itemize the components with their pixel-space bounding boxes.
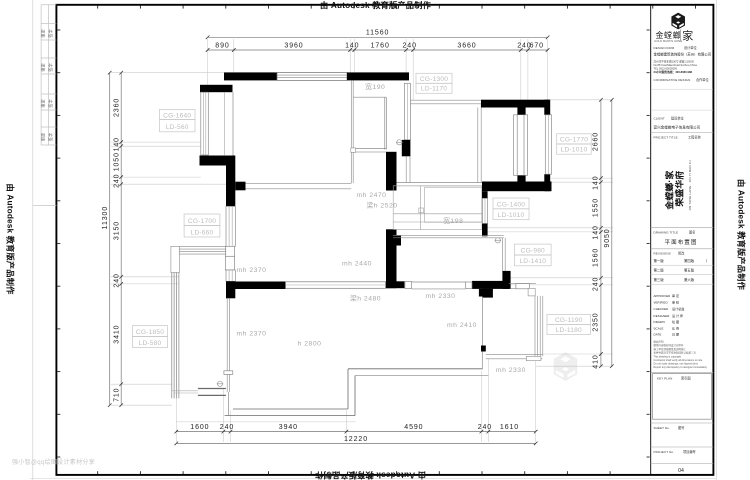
svg-text:This drawing is copyright: This drawing is copyright <box>654 355 682 358</box>
svg-text:APPROVED: APPROVED <box>654 294 671 298</box>
svg-text:mh 2370: mh 2370 <box>237 331 267 338</box>
svg-text:建设单位: 建设单位 <box>671 116 685 121</box>
svg-text:1550: 1550 <box>592 198 599 217</box>
svg-text:240: 240 <box>403 42 417 49</box>
svg-text:240: 240 <box>478 424 492 431</box>
svg-text:第二版: 第二版 <box>654 267 665 272</box>
svg-text:审定: 审定 <box>40 29 47 37</box>
svg-text:SHEET No.: SHEET No. <box>654 426 670 430</box>
svg-text:1760: 1760 <box>371 42 390 49</box>
svg-text:签字: 签字 <box>47 29 53 37</box>
svg-text:3410: 3410 <box>114 325 121 344</box>
svg-text:Contractor shall verify all di: Contractor shall verify all dimensions o… <box>654 359 703 362</box>
svg-text:DESIGN FIRM: DESIGN FIRM <box>654 46 675 50</box>
svg-text:LD-1180: LD-1180 <box>556 327 582 334</box>
svg-text:设 计 师: 设 计 师 <box>672 313 683 318</box>
svg-text:梁h 2520: 梁h 2520 <box>366 201 397 210</box>
svg-text:荣盛华府: 荣盛华府 <box>673 171 684 207</box>
svg-text:CG-1850: CG-1850 <box>136 329 164 336</box>
svg-text:2350: 2350 <box>592 312 599 331</box>
svg-text:宜兴金螳螂电子信息有限公司: 宜兴金螳螂电子信息有限公司 <box>654 125 701 130</box>
svg-text:mh 2330: mh 2330 <box>496 367 526 374</box>
svg-text:第六版: 第六版 <box>684 277 695 282</box>
svg-text:由 Autodesk 教育版产品制作: 由 Autodesk 教育版产品制作 <box>320 0 432 10</box>
svg-text:强小智@qq绘图设计素材分享: 强小智@qq绘图设计素材分享 <box>12 458 95 466</box>
svg-text:DESIGNER: DESIGNER <box>654 314 670 318</box>
svg-text:140: 140 <box>114 137 121 151</box>
svg-text:890: 890 <box>215 42 229 49</box>
svg-text:由 Autodesk 教育版产品制作: 由 Autodesk 教育版产品制作 <box>737 179 747 291</box>
svg-text:CG-1400: CG-1400 <box>497 202 525 209</box>
svg-text:金螳螂·家: 金螳螂·家 <box>664 170 675 210</box>
svg-text:1610: 1610 <box>500 424 519 431</box>
svg-text:CG-1300: CG-1300 <box>420 76 448 83</box>
svg-text:宽190: 宽190 <box>365 82 385 91</box>
svg-text:梁h 2480: 梁h 2480 <box>350 293 381 302</box>
svg-text:PROJECT TITLE: PROJECT TITLE <box>654 135 678 139</box>
svg-text:No.88 XuanMiao Road,Suzhou,Chi: No.88 XuanMiao Road,Suzhou,China <box>654 63 698 67</box>
svg-text:宽198: 宽198 <box>443 216 463 225</box>
svg-text:670: 670 <box>530 42 544 49</box>
svg-text:3660: 3660 <box>457 42 476 49</box>
svg-text:TEL 0512-65000000: TEL 0512-65000000 <box>654 66 678 70</box>
svg-text:平面布置图: 平面布置图 <box>665 238 698 246</box>
svg-text:3150: 3150 <box>114 221 121 240</box>
svg-text:CG-1640: CG-1640 <box>163 112 191 119</box>
svg-text:绘 图: 绘 图 <box>672 319 679 324</box>
svg-text:3940: 3940 <box>279 424 298 431</box>
svg-text:第三版: 第三版 <box>654 277 665 282</box>
svg-text:索引图: 索引图 <box>681 376 691 381</box>
svg-text:CHECKED: CHECKED <box>654 307 669 311</box>
svg-text:施工单位须按图纸及说明施工: 施工单位须按图纸及说明施工 <box>654 347 687 351</box>
svg-text:04: 04 <box>678 468 684 474</box>
svg-text:3960: 3960 <box>284 42 303 49</box>
svg-text:Report any discrepancy to desi: Report any discrepancy to designer immed… <box>654 366 708 369</box>
svg-text:签字: 签字 <box>47 133 53 141</box>
svg-text:710: 710 <box>114 388 121 402</box>
svg-text:2360: 2360 <box>114 98 121 117</box>
svg-text:由 Autodesk 教育版产品制作: 由 Autodesk 教育版产品制作 <box>314 471 426 480</box>
svg-text:GOLD MANTIS HOME: GOLD MANTIS HOME <box>654 39 682 43</box>
svg-text:140: 140 <box>592 176 599 190</box>
svg-text:修改: 修改 <box>678 250 685 255</box>
svg-text:KEY PLAN: KEY PLAN <box>657 377 672 381</box>
svg-text:VERIFIED: VERIFIED <box>654 301 668 305</box>
svg-text:12220: 12220 <box>344 436 368 443</box>
svg-text:DRAWING TITLE: DRAWING TITLE <box>654 230 679 234</box>
svg-text:CG-980: CG-980 <box>521 248 545 255</box>
svg-text:审 定: 审 定 <box>672 293 679 298</box>
svg-text:审 核: 审 核 <box>672 300 679 305</box>
svg-text:金螳螂建筑装饰股份（苏州）有限公司: 金螳螂建筑装饰股份（苏州）有限公司 <box>654 51 712 56</box>
svg-text:140: 140 <box>345 42 359 49</box>
svg-text:mh 2370: mh 2370 <box>237 267 267 274</box>
svg-text:JIN TANG LANG · JIN YI BAN JU: JIN TANG LANG · JIN YI BAN JU <box>688 160 692 210</box>
svg-text:审定: 审定 <box>40 63 47 71</box>
svg-text:11300: 11300 <box>102 206 109 229</box>
svg-text:24小时服务热线：400-8080-988: 24小时服务热线：400-8080-988 <box>654 70 693 74</box>
svg-text:比 例: 比 例 <box>672 325 679 330</box>
svg-text:未经书面许可不得复制或转让给第三方: 未经书面许可不得复制或转让给第三方 <box>654 351 697 355</box>
svg-text:签字: 签字 <box>47 63 53 71</box>
svg-text:合作单位: 合作单位 <box>696 77 710 82</box>
svg-text:1600: 1600 <box>190 424 209 431</box>
svg-text:PROJECT No.: PROJECT No. <box>654 450 675 454</box>
svg-text:240: 240 <box>592 277 599 291</box>
svg-text:LD-660: LD-660 <box>191 229 214 236</box>
svg-text:240: 240 <box>114 273 121 287</box>
svg-text:Do not scale drawings, use fig: Do not scale drawings, use figured dims <box>654 363 699 366</box>
svg-text:第一版: 第一版 <box>654 258 665 263</box>
svg-text:CG-1770: CG-1770 <box>560 137 588 144</box>
svg-text:LD-1010: LD-1010 <box>498 212 525 219</box>
svg-text:LD-1170: LD-1170 <box>421 86 447 93</box>
svg-text:CLIENT: CLIENT <box>654 117 665 121</box>
svg-text:mh 2410: mh 2410 <box>447 322 477 329</box>
svg-text:|: | <box>706 259 707 263</box>
svg-text:mh 2330: mh 2330 <box>426 293 456 300</box>
svg-text:设计单位: 设计单位 <box>684 45 698 50</box>
svg-text:11560: 11560 <box>366 30 389 37</box>
svg-text:2660: 2660 <box>592 132 599 151</box>
svg-text:版权声明: 版权声明 <box>654 340 665 344</box>
svg-text:LD-1410: LD-1410 <box>519 258 546 265</box>
svg-text:工程名称: 工程名称 <box>688 134 702 139</box>
svg-text:第五版: 第五版 <box>684 267 695 272</box>
svg-text:苏州市干将东路100号 邮编 215000: 苏州市干将东路100号 邮编 215000 <box>654 59 695 63</box>
svg-text:设计总监: 设计总监 <box>672 306 684 311</box>
svg-text:审定: 审定 <box>40 99 47 107</box>
svg-text:1050: 1050 <box>114 152 121 171</box>
svg-text:DATE: DATE <box>654 333 662 337</box>
svg-text:SCALE: SCALE <box>654 326 664 330</box>
svg-text:项目编号: 项目编号 <box>683 449 696 454</box>
svg-text:REVISIONS: REVISIONS <box>654 251 671 255</box>
svg-text:LD-560: LD-560 <box>166 124 189 131</box>
svg-text:mh 2470: mh 2470 <box>357 192 387 199</box>
svg-text:金螳螂: 金螳螂 <box>656 30 682 40</box>
svg-text:CG-1700: CG-1700 <box>188 218 216 225</box>
svg-text:140: 140 <box>592 225 599 239</box>
svg-text:日 期: 日 期 <box>672 332 679 337</box>
svg-text:LD-580: LD-580 <box>139 340 162 347</box>
svg-text:1560: 1560 <box>592 248 599 267</box>
svg-text:LD-1010: LD-1010 <box>561 147 588 154</box>
svg-text:由 Autodesk 教育版产品制作: 由 Autodesk 教育版产品制作 <box>6 184 16 296</box>
svg-text:h 2800: h 2800 <box>298 341 322 348</box>
svg-text:240: 240 <box>114 174 121 188</box>
svg-text:第四版: 第四版 <box>684 258 695 263</box>
svg-text:4590: 4590 <box>404 424 423 431</box>
svg-text:图纸内容版权归设计方所有: 图纸内容版权归设计方所有 <box>654 343 685 347</box>
svg-text:DRAWN: DRAWN <box>654 320 665 324</box>
svg-text:9050: 9050 <box>604 228 611 247</box>
svg-text:240: 240 <box>220 424 234 431</box>
svg-text:410: 410 <box>592 354 599 368</box>
svg-text:mh 2440: mh 2440 <box>342 261 372 268</box>
svg-text:CG-1190: CG-1190 <box>555 317 583 324</box>
svg-text:COORDINATIVE DESIGN: COORDINATIVE DESIGN <box>654 78 691 82</box>
svg-text:图名: 图名 <box>689 229 695 234</box>
svg-text:签字: 签字 <box>47 99 53 107</box>
svg-text:图号: 图号 <box>678 425 684 430</box>
svg-text:审定: 审定 <box>40 133 47 141</box>
svg-text:家: 家 <box>682 28 693 42</box>
